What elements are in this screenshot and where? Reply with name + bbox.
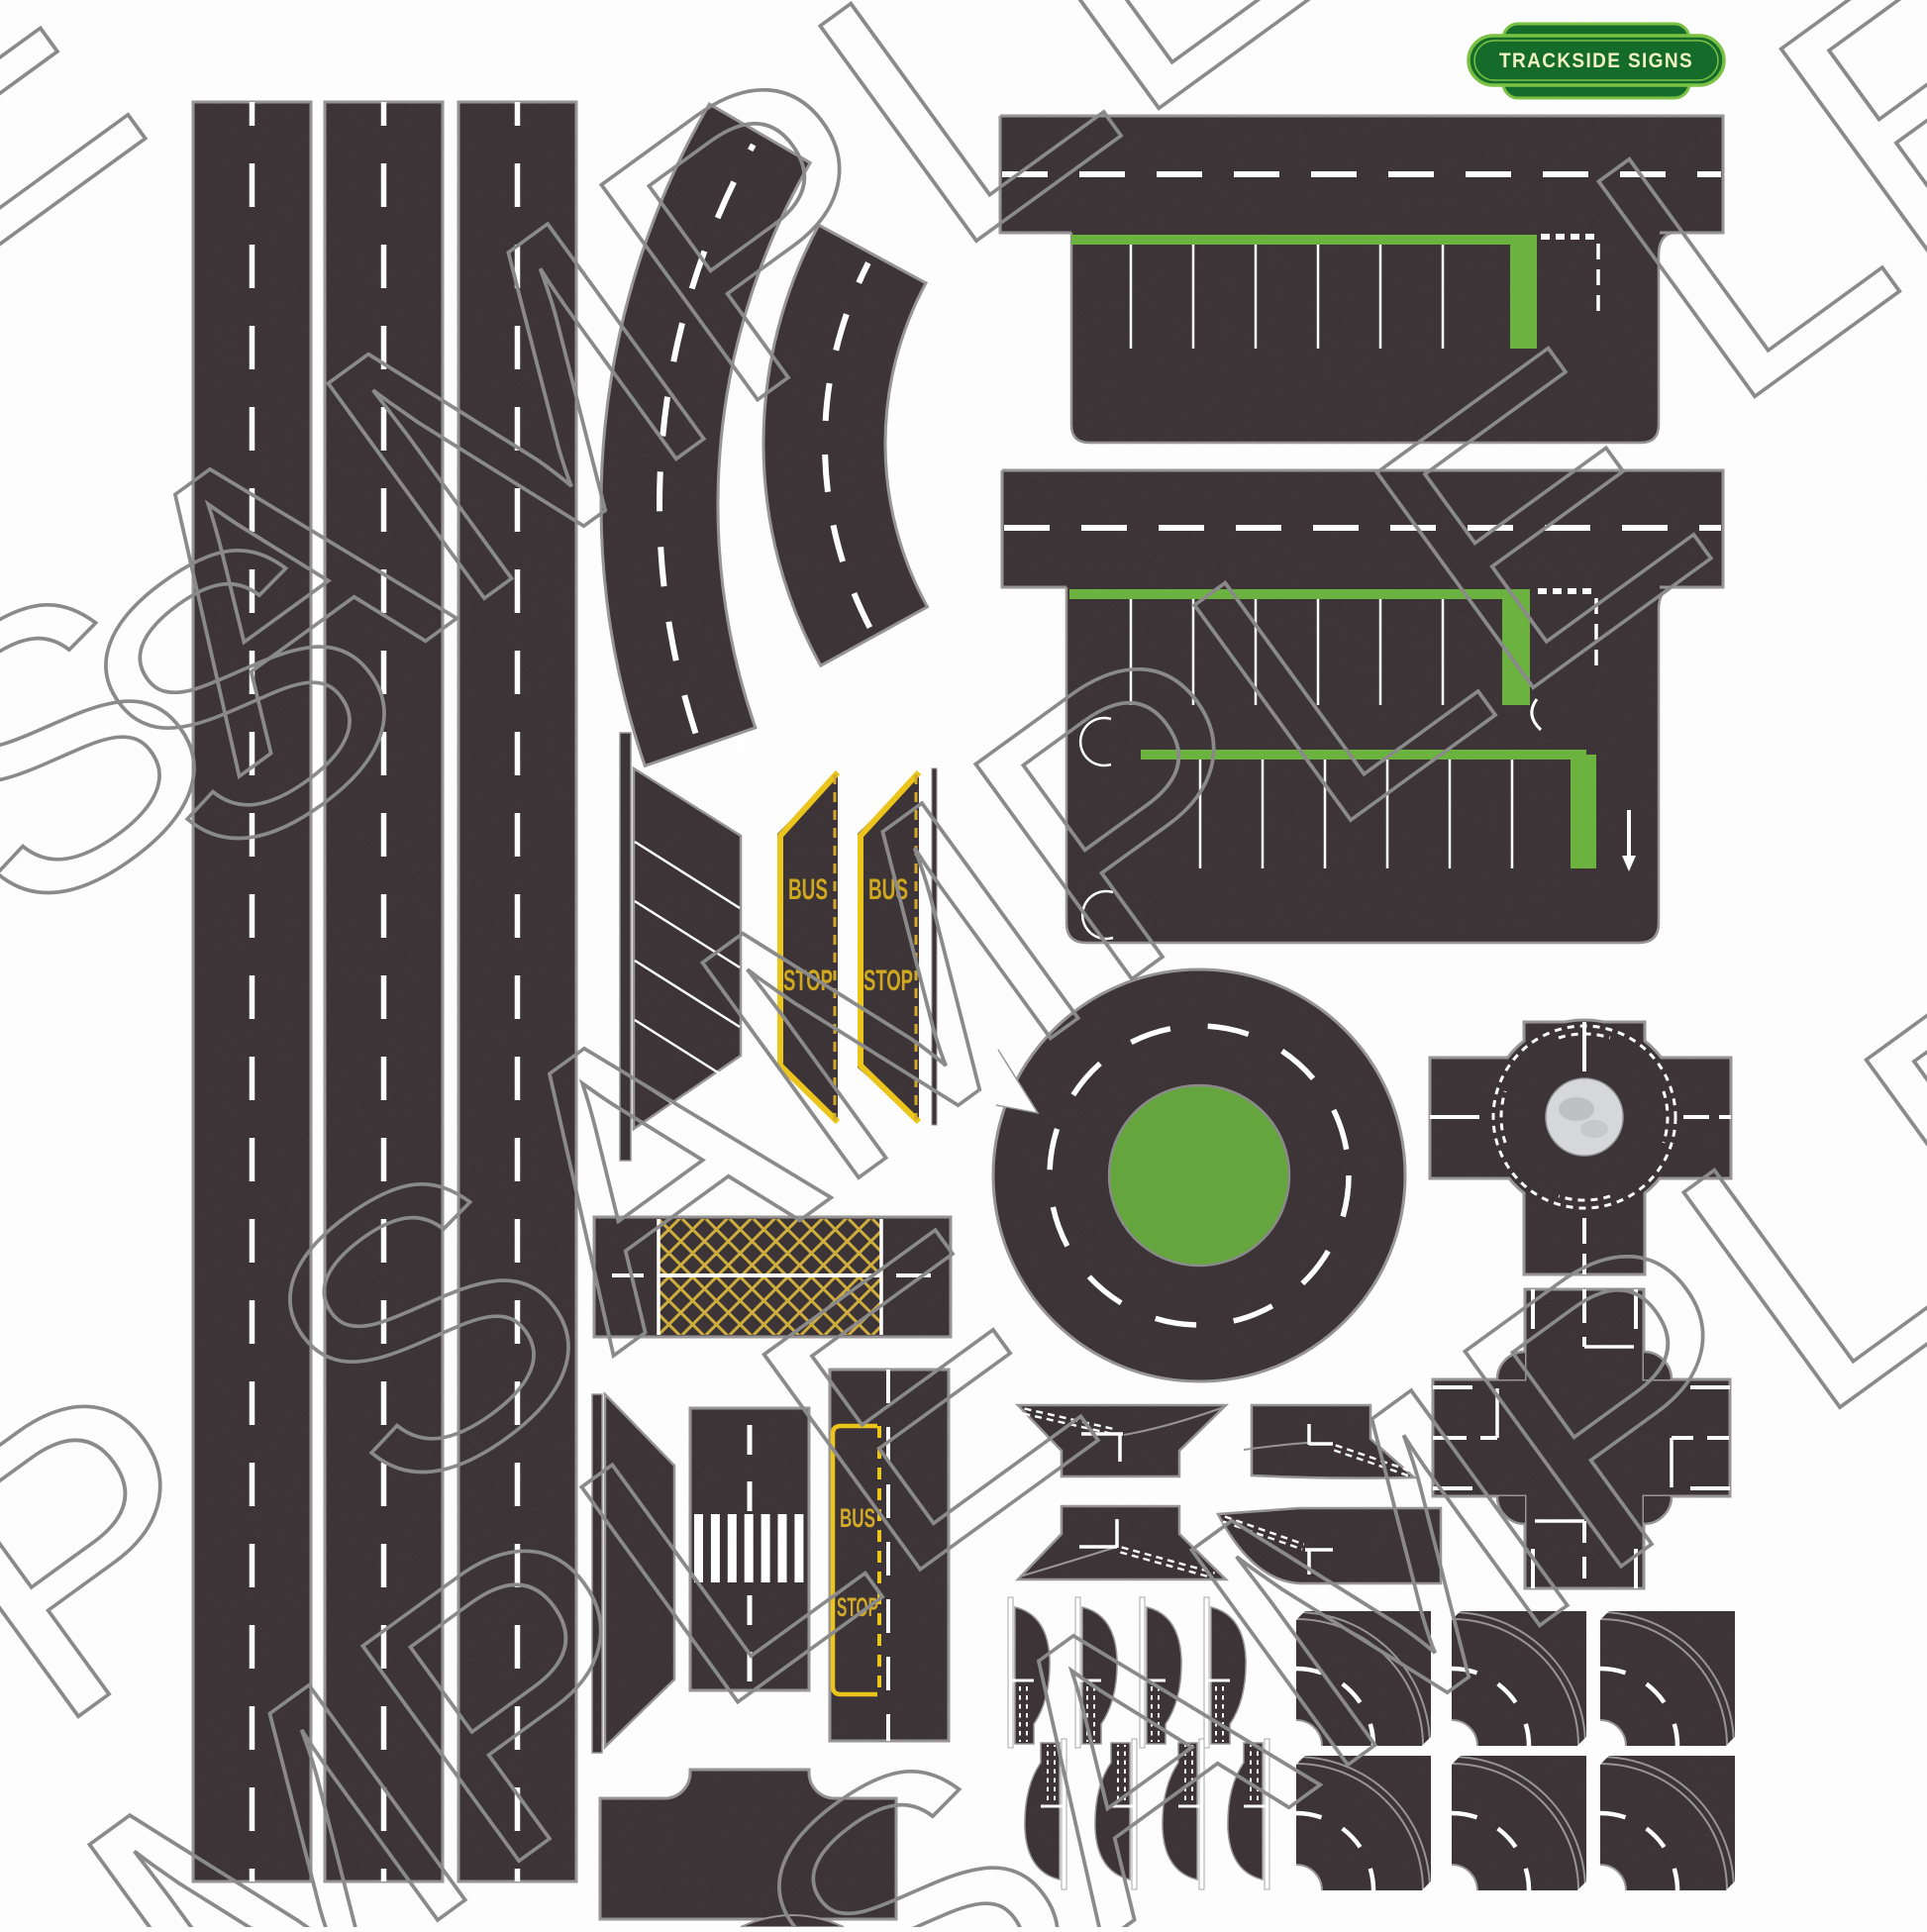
svg-text:TRACKSIDE SIGNS: TRACKSIDE SIGNS — [1499, 50, 1693, 72]
